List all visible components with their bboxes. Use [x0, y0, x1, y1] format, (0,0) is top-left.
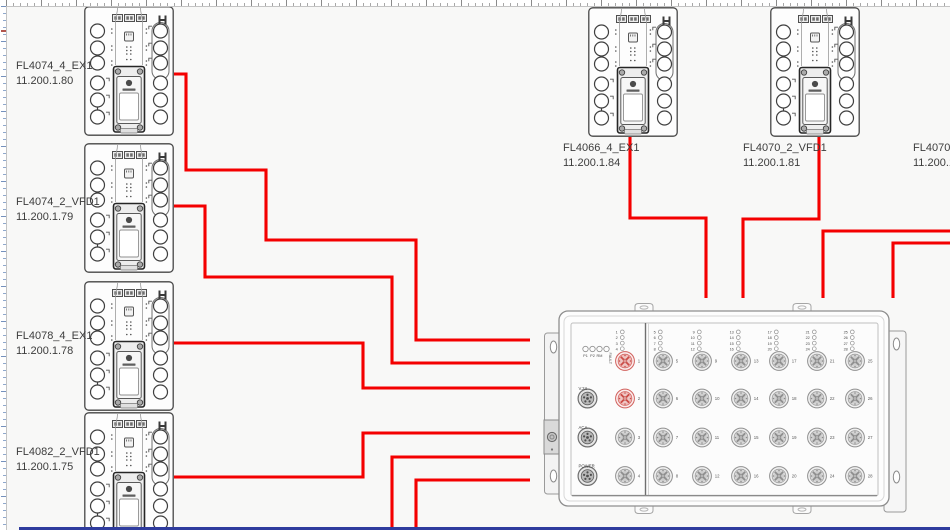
led-number-label: 1 [616, 331, 618, 335]
device-ip: 11.200.1.84 [563, 156, 723, 171]
port-number-label: 26 [868, 396, 873, 401]
port-led [620, 341, 624, 345]
led-number-label: 17 [768, 331, 772, 335]
led-number-label: 2 [616, 336, 618, 340]
switch-port-10[interactable] [693, 389, 712, 408]
device-label: FL4070_2_VFD1 11.200.1.81 [743, 141, 903, 171]
port-led [736, 330, 740, 334]
switch-port-22[interactable] [808, 389, 827, 408]
port-led [850, 341, 854, 345]
device-label: FL4078_4_EX1 11.200.1.78 [16, 329, 176, 359]
port-number-label: 16 [754, 474, 759, 479]
switch-port-1[interactable] [616, 352, 635, 371]
port-number-label: 17 [792, 359, 797, 364]
led-number-label: 16 [730, 347, 734, 351]
service-port-label: ACA [579, 425, 588, 430]
port-number-label: 14 [754, 396, 759, 401]
service-port-label: V.24 [579, 386, 588, 391]
switch-port-14[interactable] [732, 389, 751, 408]
switch-port-11[interactable] [693, 428, 712, 447]
device-fl4070-2-vfd1[interactable] [771, 8, 859, 136]
port-led [658, 336, 662, 340]
switch-port-18[interactable] [770, 389, 789, 408]
device-name: FL4066_4_EX1 [563, 141, 723, 156]
port-number-label: 24 [830, 474, 835, 479]
cable-offscreen-right-1[interactable] [823, 231, 950, 298]
port-number-label: 22 [830, 396, 835, 401]
port-led [658, 347, 662, 351]
switch-port-15[interactable] [732, 428, 751, 447]
port-number-label: 19 [792, 435, 797, 440]
led-number-label: 5 [654, 331, 656, 335]
port-led [812, 341, 816, 345]
cable-offscreen-bottom-1[interactable] [392, 457, 530, 530]
device-ip: 11.200.1.81 [743, 156, 903, 171]
status-led-p2 [590, 346, 595, 351]
device-name: FL4078_4_EX1 [16, 329, 176, 344]
switch-port-8[interactable] [654, 467, 673, 486]
status-led-label: RM [597, 354, 603, 358]
port-number-label: 20 [792, 474, 797, 479]
port-led [736, 341, 740, 345]
device-ip: 11.200.1.79 [16, 210, 176, 225]
device-label: FL4066_4_EX1 11.200.1.84 [563, 141, 723, 171]
led-number-label: 7 [654, 342, 656, 346]
service-port-label: POWER [579, 463, 595, 468]
switch-port-5[interactable] [654, 352, 673, 371]
device-name: FL4074_2_VFD1 [16, 195, 176, 210]
service-port-v24[interactable] [578, 389, 597, 408]
device-name: FL4082_2_VFD1 [16, 445, 176, 460]
cable-fl4082_2_vfd1[interactable] [174, 433, 530, 477]
port-led [658, 330, 662, 334]
cable-fl4074_4_ex1[interactable] [174, 74, 530, 340]
port-led [774, 347, 778, 351]
led-number-label: 25 [844, 331, 848, 335]
port-led [736, 336, 740, 340]
port-number-label: 27 [868, 435, 873, 440]
service-port-power[interactable] [578, 467, 597, 486]
port-number-label: 12 [715, 474, 720, 479]
led-number-label: 10 [691, 336, 695, 340]
service-port-aca[interactable] [578, 428, 597, 447]
status-led-p1 [583, 346, 588, 351]
port-number-label: 10 [715, 396, 720, 401]
switch-port-28[interactable] [846, 467, 865, 486]
led-number-label: 20 [768, 347, 772, 351]
led-number-label: 9 [693, 331, 695, 335]
device-ip: 11.200.1.75 [16, 460, 176, 475]
ruler-corner [0, 0, 6, 6]
switch-port-27[interactable] [846, 428, 865, 447]
cable-offscreen-bottom-2[interactable] [416, 480, 530, 530]
port-led [850, 347, 854, 351]
device-label: FL4074_2_VFD1 11.200.1.79 [16, 195, 176, 225]
port-led [620, 336, 624, 340]
led-number-label: 3 [616, 342, 618, 346]
port-number-label: 15 [754, 435, 759, 440]
switch-port-21[interactable] [808, 352, 827, 371]
led-number-label: 19 [768, 342, 772, 346]
port-led [620, 347, 624, 351]
port-led [697, 330, 701, 334]
device-name: FL4070_2_VFD1 [743, 141, 903, 156]
port-led [697, 336, 701, 340]
led-number-label: 24 [806, 347, 810, 351]
cable-offscreen-right-2[interactable] [893, 243, 950, 298]
switch-port-4[interactable] [616, 467, 635, 486]
ruler-vertical[interactable] [0, 6, 7, 530]
port-number-label: 11 [715, 435, 720, 440]
port-led [774, 336, 778, 340]
port-led [697, 341, 701, 345]
led-number-label: 22 [806, 336, 810, 340]
ruler-horizontal[interactable] [6, 0, 950, 7]
port-led [812, 347, 816, 351]
led-number-label: 8 [654, 347, 656, 351]
switch-port-16[interactable] [732, 467, 751, 486]
port-number-label: 18 [792, 396, 797, 401]
switch-port-3[interactable] [616, 428, 635, 447]
led-number-label: 12 [691, 347, 695, 351]
led-number-label: 18 [768, 336, 772, 340]
port-led [697, 347, 701, 351]
led-number-label: 14 [730, 336, 734, 340]
device-fl4066-4-ex1[interactable] [589, 8, 677, 136]
device-ip: 11.200.1. [913, 156, 950, 171]
switch-port-19[interactable] [770, 428, 789, 447]
port-led [850, 330, 854, 334]
port-led [774, 330, 778, 334]
device-ip: 11.200.1.78 [16, 344, 176, 359]
led-number-label: 27 [844, 342, 848, 346]
switch-port-23[interactable] [808, 428, 827, 447]
device-name: FL4074_4_EX1 [16, 59, 176, 74]
led-number-label: 28 [844, 347, 848, 351]
led-number-label: 13 [730, 331, 734, 335]
switch-port-2[interactable] [616, 389, 635, 408]
device-label: FL4082_2_VFD1 11.200.1.75 [16, 445, 176, 475]
switch-port-24[interactable] [808, 467, 827, 486]
led-number-label: 6 [654, 336, 656, 340]
cable-fl4078_4_ex1[interactable] [174, 343, 530, 388]
status-led-label: FAULT [608, 353, 612, 365]
device-ip: 11.200.1.80 [16, 74, 176, 89]
device-name: FL4070_4 [913, 141, 950, 156]
port-led [850, 336, 854, 340]
led-number-label: 21 [806, 331, 810, 335]
led-number-label: 23 [806, 342, 810, 346]
port-number-label: 25 [868, 359, 873, 364]
port-number-label: 13 [754, 359, 759, 364]
switch-port-26[interactable] [846, 389, 865, 408]
status-led-rm [597, 346, 602, 351]
switch-port-12[interactable] [693, 467, 712, 486]
switch-port-25[interactable] [846, 352, 865, 371]
port-led [812, 336, 816, 340]
led-number-label: 26 [844, 336, 848, 340]
switch-port-13[interactable] [732, 352, 751, 371]
device-label: FL4074_4_EX1 11.200.1.80 [16, 59, 176, 89]
port-led [774, 341, 778, 345]
port-number-label: 28 [868, 474, 873, 479]
switch-port-9[interactable] [693, 352, 712, 371]
port-led [658, 341, 662, 345]
port-led [620, 330, 624, 334]
led-number-label: 15 [730, 342, 734, 346]
status-led-label: P1 [583, 354, 588, 358]
device-label-clipped: FL4070_4 11.200.1. [913, 141, 950, 171]
switch-port-7[interactable] [654, 428, 673, 447]
switch-port-17[interactable] [770, 352, 789, 371]
port-led [736, 347, 740, 351]
status-led-label: P2 [590, 354, 595, 358]
diagram-canvas: 1122334455667788991010111112121313141415… [0, 0, 950, 530]
switch-port-6[interactable] [654, 389, 673, 408]
port-number-label: 23 [830, 435, 835, 440]
status-led-fault [604, 346, 609, 351]
switch-port-20[interactable] [770, 467, 789, 486]
led-number-label: 4 [616, 347, 618, 351]
led-number-label: 11 [691, 342, 695, 346]
port-number-label: 21 [830, 359, 835, 364]
port-led [812, 330, 816, 334]
